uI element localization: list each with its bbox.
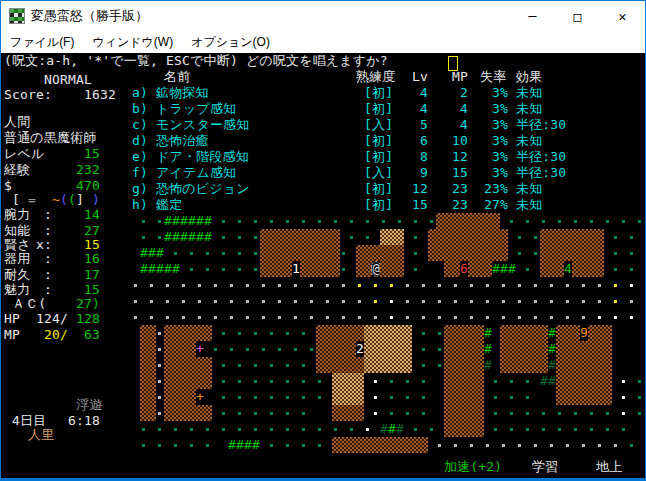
stat-str-value: 14 bbox=[84, 207, 100, 223]
floor-dot bbox=[334, 220, 337, 223]
floor-dot bbox=[374, 284, 377, 287]
floor-dot bbox=[526, 428, 529, 431]
floor-dot bbox=[486, 300, 489, 303]
floor-dot bbox=[534, 444, 537, 447]
equip-soft-armor: ( bbox=[60, 192, 68, 208]
floor-dot bbox=[406, 284, 409, 287]
floor-dot bbox=[470, 284, 473, 287]
wall-block bbox=[260, 229, 340, 245]
floor-dot bbox=[222, 252, 225, 255]
spell-letter: f) bbox=[132, 165, 148, 181]
door: + bbox=[196, 389, 204, 405]
floor-dot bbox=[558, 428, 561, 431]
spell-fail-rate: 3% bbox=[492, 101, 508, 117]
floor-dot bbox=[262, 316, 265, 319]
floor-dot bbox=[206, 252, 209, 255]
floor-dot bbox=[350, 428, 353, 431]
spell-mana: 15 bbox=[452, 165, 468, 181]
spell-level: 4 bbox=[420, 101, 428, 117]
trees: ###### bbox=[164, 229, 212, 245]
floor-dot bbox=[614, 252, 617, 255]
floor-dot bbox=[134, 300, 137, 303]
floor-dot bbox=[158, 332, 161, 335]
floor-dot bbox=[430, 428, 433, 431]
floor-dot bbox=[286, 332, 289, 335]
floor-dot bbox=[390, 396, 393, 399]
floor-dot bbox=[638, 220, 641, 223]
floor-dot bbox=[414, 236, 417, 239]
floor-dot bbox=[230, 316, 233, 319]
floor-dot bbox=[350, 220, 353, 223]
floor-dot bbox=[638, 412, 641, 415]
floor-dot bbox=[422, 412, 425, 415]
floor-dot bbox=[278, 284, 281, 287]
status-levitate: 浮遊 bbox=[76, 397, 102, 413]
equip-ring: = bbox=[28, 192, 36, 208]
floor-dot bbox=[438, 316, 441, 319]
floor-dot bbox=[230, 300, 233, 303]
wall-block bbox=[300, 261, 340, 277]
floor-dot bbox=[598, 316, 601, 319]
wall-block bbox=[332, 405, 364, 421]
floor-dot bbox=[454, 300, 457, 303]
ac-label: ＡＣ( bbox=[12, 296, 46, 312]
floor-dot bbox=[246, 348, 249, 351]
floor-dot bbox=[550, 444, 553, 447]
floor-dot bbox=[190, 428, 193, 431]
floor-dot bbox=[526, 396, 529, 399]
trees: ###### bbox=[164, 213, 212, 229]
spell-letter: c) bbox=[132, 117, 148, 133]
minimize-button[interactable]: ─ bbox=[510, 1, 555, 31]
floor-dot bbox=[590, 428, 593, 431]
wall-block bbox=[364, 357, 412, 373]
wall-block bbox=[164, 325, 212, 341]
floor-dot bbox=[526, 220, 529, 223]
wall-block bbox=[540, 261, 564, 277]
wall-block bbox=[436, 213, 500, 229]
floor-dot bbox=[158, 348, 161, 351]
floor-dot bbox=[622, 380, 625, 383]
spell-letter: h) bbox=[132, 197, 148, 213]
spell-effect: 未知 bbox=[516, 101, 542, 117]
mp-max: 63 bbox=[84, 327, 100, 343]
floor-dot bbox=[270, 332, 273, 335]
floor-dot bbox=[214, 348, 217, 351]
floor-dot bbox=[222, 364, 225, 367]
floor-dot bbox=[598, 444, 601, 447]
wall-block bbox=[164, 373, 212, 389]
floor-dot bbox=[214, 316, 217, 319]
wall-block bbox=[364, 325, 412, 341]
floor-dot bbox=[198, 300, 201, 303]
spell-effect: 未知 bbox=[516, 133, 542, 149]
floor-dot bbox=[302, 220, 305, 223]
floor-dot bbox=[294, 316, 297, 319]
wall-block bbox=[332, 373, 364, 389]
floor-dot bbox=[438, 332, 441, 335]
floor-dot bbox=[502, 316, 505, 319]
floor-dot bbox=[222, 380, 225, 383]
floor-dot bbox=[518, 236, 521, 239]
gold-label: $ bbox=[4, 178, 12, 194]
floor-dot bbox=[190, 444, 193, 447]
floor-dot bbox=[526, 412, 529, 415]
score-value: 1632 bbox=[84, 87, 116, 103]
floor-dot bbox=[550, 316, 553, 319]
player-at: @ bbox=[372, 261, 380, 277]
floor-dot bbox=[198, 284, 201, 287]
floor-dot bbox=[214, 284, 217, 287]
floor-dot bbox=[318, 220, 321, 223]
hp-max: 128 bbox=[76, 311, 100, 327]
floor-dot bbox=[206, 428, 209, 431]
floor-dot bbox=[630, 284, 633, 287]
prompt-text: (呪文:a-h, '*'で一覧, ESCで中断) どの呪文を唱えますか? bbox=[4, 53, 396, 69]
status-haste: 加速(+2) bbox=[444, 459, 502, 475]
floor-dot bbox=[566, 300, 569, 303]
shop-entrance-6: 6 bbox=[460, 261, 468, 277]
spell-name: 鑑定 bbox=[156, 197, 182, 213]
floor-dot bbox=[278, 300, 281, 303]
floor-dot bbox=[286, 364, 289, 367]
exp-value: 232 bbox=[76, 162, 100, 178]
floor-dot bbox=[494, 428, 497, 431]
floor-dot bbox=[222, 220, 225, 223]
floor-dot bbox=[286, 396, 289, 399]
wall-block bbox=[468, 261, 492, 277]
floor-dot bbox=[438, 300, 441, 303]
floor-dot bbox=[270, 444, 273, 447]
floor-dot bbox=[598, 284, 601, 287]
spell-proficiency: [初] bbox=[364, 149, 393, 165]
wall-block bbox=[316, 341, 356, 357]
floor-dot bbox=[422, 284, 425, 287]
class: 普通の黒魔術師 bbox=[4, 130, 97, 146]
floor-dot bbox=[502, 444, 505, 447]
trees: # bbox=[484, 357, 492, 373]
floor-dot bbox=[470, 444, 473, 447]
floor-dot bbox=[502, 284, 505, 287]
stat-dex-value: 16 bbox=[84, 251, 100, 267]
exp-label: 経験 bbox=[4, 162, 30, 178]
floor-dot bbox=[510, 428, 513, 431]
floor-dot bbox=[534, 284, 537, 287]
spell-name: モンスター感知 bbox=[156, 117, 249, 133]
floor-dot bbox=[150, 284, 153, 287]
floor-dot bbox=[342, 284, 345, 287]
wall-block bbox=[588, 325, 612, 341]
spell-mana: 2 bbox=[460, 85, 468, 101]
wall-block bbox=[444, 389, 484, 405]
wall-block bbox=[444, 373, 484, 389]
spell-mana: 10 bbox=[452, 133, 468, 149]
equip-shield: ) bbox=[92, 192, 100, 208]
floor-dot bbox=[270, 380, 273, 383]
floor-dot bbox=[238, 428, 241, 431]
spell-effect: 未知 bbox=[516, 197, 542, 213]
ac-value: 27) bbox=[76, 296, 100, 312]
floor-dot bbox=[374, 412, 377, 415]
floor-dot bbox=[438, 444, 441, 447]
floor-dot bbox=[374, 396, 377, 399]
trees: # bbox=[380, 421, 388, 437]
shop-entrance-4: 4 bbox=[564, 261, 572, 277]
wall-block bbox=[140, 373, 156, 389]
wall-block bbox=[260, 261, 292, 277]
trees: ##### bbox=[140, 261, 180, 277]
floor-dot bbox=[582, 316, 585, 319]
floor-dot bbox=[286, 220, 289, 223]
floor-dot bbox=[614, 316, 617, 319]
floor-dot bbox=[518, 252, 521, 255]
wall-block bbox=[260, 245, 340, 261]
spell-letter: d) bbox=[132, 133, 148, 149]
floor-dot bbox=[326, 300, 329, 303]
spell-level: 8 bbox=[420, 149, 428, 165]
wall-block bbox=[500, 357, 548, 373]
floor-dot bbox=[342, 268, 345, 271]
floor-dot bbox=[238, 252, 241, 255]
floor-dot bbox=[438, 348, 441, 351]
floor-dot bbox=[270, 412, 273, 415]
spell-name: アイテム感知 bbox=[156, 165, 236, 181]
floor-dot bbox=[326, 316, 329, 319]
equip-misc: ] bbox=[76, 192, 84, 208]
floor-dot bbox=[286, 412, 289, 415]
floor-dot bbox=[238, 332, 241, 335]
floor-dot bbox=[182, 316, 185, 319]
spell-level: 4 bbox=[420, 85, 428, 101]
floor-dot bbox=[270, 428, 273, 431]
spell-fail-rate: 3% bbox=[492, 149, 508, 165]
floor-dot bbox=[206, 444, 209, 447]
floor-dot bbox=[174, 252, 177, 255]
wall-block bbox=[444, 261, 460, 277]
menu-item-file[interactable]: ファイル(F) bbox=[1, 34, 83, 51]
term-text: : bbox=[44, 267, 52, 283]
wall-block bbox=[140, 341, 156, 357]
spell-level: 6 bbox=[420, 133, 428, 149]
floor-dot bbox=[302, 428, 305, 431]
floor-dot bbox=[366, 428, 369, 431]
spell-mana: 12 bbox=[452, 149, 468, 165]
floor-dot bbox=[390, 412, 393, 415]
equip-cloak: ( bbox=[68, 192, 76, 208]
floor-dot bbox=[622, 428, 625, 431]
floor-dot bbox=[158, 396, 161, 399]
wall-block bbox=[140, 325, 156, 341]
spell-effect: 半径:30 bbox=[516, 165, 566, 181]
trees: # bbox=[396, 421, 404, 437]
floor-dot bbox=[566, 444, 569, 447]
floor-dot bbox=[518, 316, 521, 319]
floor-dot bbox=[358, 300, 361, 303]
floor-dot bbox=[302, 364, 305, 367]
floor-dot bbox=[614, 300, 617, 303]
floor-dot bbox=[470, 316, 473, 319]
floor-dot bbox=[494, 412, 497, 415]
title-bar[interactable]: 変愚蛮怒（勝手版） ─ □ ✕ bbox=[1, 1, 645, 31]
floor-dot bbox=[582, 444, 585, 447]
shop-entrance-2: 2 bbox=[356, 341, 364, 357]
floor-dot bbox=[358, 284, 361, 287]
floor-dot bbox=[166, 316, 169, 319]
spell-effect: 半径:30 bbox=[516, 117, 566, 133]
level-value: 15 bbox=[84, 146, 100, 162]
floor-dot bbox=[262, 348, 265, 351]
trees: ### bbox=[140, 245, 164, 261]
floor-dot bbox=[174, 444, 177, 447]
location-name: 人里 bbox=[28, 427, 54, 443]
col-header-prof: 熟練度 bbox=[356, 69, 396, 85]
floor-dot bbox=[486, 284, 489, 287]
stat-str-label: 腕力 bbox=[4, 207, 30, 223]
floor-dot bbox=[254, 364, 257, 367]
mp-current: 20/ bbox=[44, 327, 68, 343]
floor-dot bbox=[294, 348, 297, 351]
floor-dot bbox=[278, 316, 281, 319]
floor-dot bbox=[254, 412, 257, 415]
floor-dot bbox=[510, 412, 513, 415]
floor-dot bbox=[526, 268, 529, 271]
floor-dot bbox=[222, 236, 225, 239]
floor-dot bbox=[150, 300, 153, 303]
floor-dot bbox=[534, 316, 537, 319]
spell-level: 12 bbox=[412, 181, 428, 197]
floor-dot bbox=[558, 220, 561, 223]
menu-bar: ファイル(F) ウィンドウ(W) オプション(O) bbox=[1, 31, 645, 54]
floor-dot bbox=[494, 396, 497, 399]
floor-dot bbox=[574, 428, 577, 431]
wall-block bbox=[444, 325, 484, 341]
spell-name: 恐怖のビジョン bbox=[156, 181, 250, 197]
wall-block bbox=[540, 229, 604, 245]
floor-dot bbox=[630, 300, 633, 303]
floor-dot bbox=[222, 428, 225, 431]
floor-dot bbox=[254, 220, 257, 223]
floor-dot bbox=[550, 284, 553, 287]
floor-dot bbox=[454, 444, 457, 447]
floor-dot bbox=[398, 220, 401, 223]
floor-dot bbox=[406, 316, 409, 319]
floor-dot bbox=[438, 284, 441, 287]
floor-dot bbox=[598, 300, 601, 303]
term-text: : bbox=[44, 251, 52, 267]
spell-fail-rate: 3% bbox=[492, 85, 508, 101]
floor-dot bbox=[358, 316, 361, 319]
stat-con-label: 耐久 bbox=[4, 267, 30, 283]
wall-block bbox=[556, 357, 612, 373]
floor-dot bbox=[286, 444, 289, 447]
spell-fail-rate: 3% bbox=[492, 133, 508, 149]
floor-dot bbox=[510, 380, 513, 383]
maximize-button[interactable]: □ bbox=[555, 1, 600, 31]
floor-dot bbox=[374, 300, 377, 303]
floor-dot bbox=[430, 220, 433, 223]
floor-dot bbox=[190, 252, 193, 255]
wall-block bbox=[140, 389, 156, 405]
spell-level: 15 bbox=[412, 197, 428, 213]
floor-dot bbox=[302, 412, 305, 415]
equip-amulet: ~ bbox=[52, 192, 60, 208]
floor-dot bbox=[302, 380, 305, 383]
menu-item-window[interactable]: ウィンドウ(W) bbox=[83, 34, 182, 51]
menu-item-options[interactable]: オプション(O) bbox=[182, 34, 279, 51]
floor-dot bbox=[254, 396, 257, 399]
floor-dot bbox=[422, 316, 425, 319]
floor-dot bbox=[222, 332, 225, 335]
floor-dot bbox=[166, 284, 169, 287]
floor-dot bbox=[302, 396, 305, 399]
spell-proficiency: [初] bbox=[364, 85, 393, 101]
spell-fail-rate: 27% bbox=[484, 197, 508, 213]
floor-dot bbox=[590, 412, 593, 415]
floor-dot bbox=[526, 380, 529, 383]
spell-fail-rate: 23% bbox=[484, 181, 508, 197]
wall-block bbox=[556, 341, 612, 357]
floor-dot bbox=[622, 220, 625, 223]
spell-proficiency: [初] bbox=[364, 101, 393, 117]
floor-dot bbox=[406, 396, 409, 399]
floor-dot bbox=[142, 444, 145, 447]
col-header-lv: Lv bbox=[412, 69, 428, 85]
floor-dot bbox=[206, 268, 209, 271]
spell-mana: 23 bbox=[452, 181, 468, 197]
equip-armor: [ bbox=[12, 192, 20, 208]
trees: ## bbox=[540, 373, 556, 389]
trees: ### bbox=[492, 261, 516, 277]
floor-dot bbox=[238, 380, 241, 383]
spell-level: 9 bbox=[420, 165, 428, 181]
floor-dot bbox=[294, 284, 297, 287]
floor-dot bbox=[390, 300, 393, 303]
floor-dot bbox=[182, 284, 185, 287]
terminal: (呪文:a-h, '*'で一覧, ESCで中断) どの呪文を唱えますか? NOR… bbox=[1, 53, 645, 478]
floor-dot bbox=[342, 300, 345, 303]
floor-dot bbox=[566, 316, 569, 319]
col-header-effect: 効果 bbox=[516, 69, 542, 85]
floor-dot bbox=[254, 428, 257, 431]
floor-dot bbox=[294, 300, 297, 303]
floor-dot bbox=[318, 428, 321, 431]
floor-dot bbox=[582, 300, 585, 303]
floor-dot bbox=[414, 428, 417, 431]
floor-dot bbox=[438, 364, 441, 367]
spell-fail-rate: 3% bbox=[492, 165, 508, 181]
app-icon bbox=[9, 8, 25, 24]
floor-dot bbox=[350, 236, 353, 239]
floor-dot bbox=[142, 236, 145, 239]
floor-dot bbox=[238, 412, 241, 415]
floor-dot bbox=[558, 412, 561, 415]
floor-dot bbox=[158, 236, 161, 239]
spell-letter: e) bbox=[132, 149, 148, 165]
floor-dot bbox=[254, 236, 257, 239]
floor-dot bbox=[614, 444, 617, 447]
floor-dot bbox=[486, 444, 489, 447]
spell-proficiency: [初] bbox=[364, 133, 393, 149]
floor-dot bbox=[630, 444, 633, 447]
floor-dot bbox=[542, 412, 545, 415]
wall-block bbox=[332, 437, 428, 453]
close-button[interactable]: ✕ bbox=[600, 1, 645, 31]
hp-label: HP bbox=[4, 311, 20, 327]
floor-dot bbox=[614, 284, 617, 287]
floor-dot bbox=[638, 396, 641, 399]
floor-dot bbox=[158, 428, 161, 431]
mode-indicator: NORMAL bbox=[44, 72, 92, 88]
